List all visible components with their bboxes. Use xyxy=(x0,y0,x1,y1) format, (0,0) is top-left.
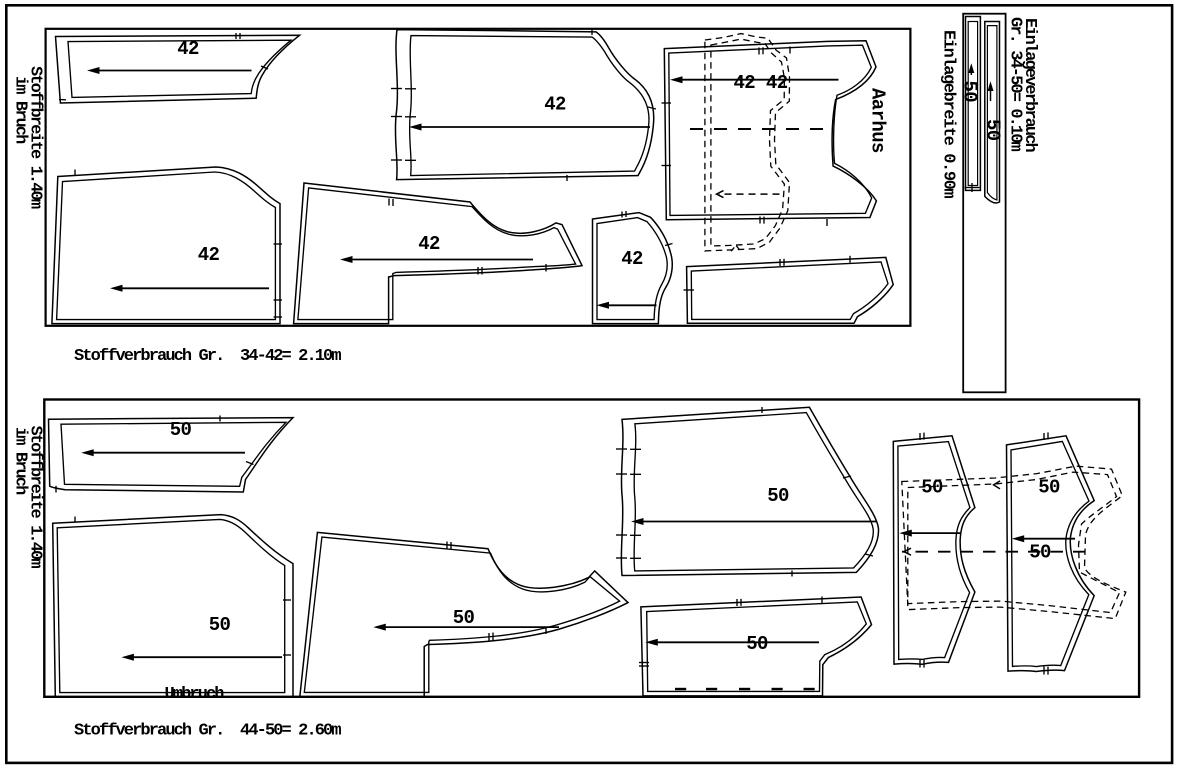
svg-text:42: 42 xyxy=(418,233,440,255)
svg-text:50: 50 xyxy=(959,81,981,103)
svg-text:Gr. 34-50= 0.10m: Gr. 34-50= 0.10m xyxy=(1006,17,1025,152)
svg-text:42: 42 xyxy=(621,248,643,270)
svg-text:50: 50 xyxy=(1029,542,1051,564)
svg-text:Einlagebreite 0.90m: Einlagebreite 0.90m xyxy=(939,30,958,198)
svg-text:Aarhus: Aarhus xyxy=(867,88,889,153)
svg-text:42: 42 xyxy=(177,38,199,60)
svg-text:50: 50 xyxy=(982,119,1004,141)
svg-text:50: 50 xyxy=(1038,477,1060,499)
svg-text:Stoffverbrauch Gr. 34-42= 2.1: Stoffverbrauch Gr. 34-42= 2.10m xyxy=(74,347,341,366)
svg-text:42 42: 42 42 xyxy=(733,72,787,94)
svg-text:Stoffverbrauch Gr. 44-50= 2.6: Stoffverbrauch Gr. 44-50= 2.60m xyxy=(74,722,341,741)
svg-text:50: 50 xyxy=(170,419,192,441)
svg-text:im Bruch: im Bruch xyxy=(11,76,30,144)
svg-text:50: 50 xyxy=(453,607,475,629)
svg-text:50: 50 xyxy=(209,614,231,636)
svg-text:im Bruch: im Bruch xyxy=(11,427,30,495)
svg-text:50: 50 xyxy=(746,633,768,655)
svg-text:Umbruch: Umbruch xyxy=(165,685,225,704)
svg-text:50: 50 xyxy=(767,485,789,507)
svg-text:42: 42 xyxy=(544,94,566,116)
svg-text:42: 42 xyxy=(198,244,220,266)
